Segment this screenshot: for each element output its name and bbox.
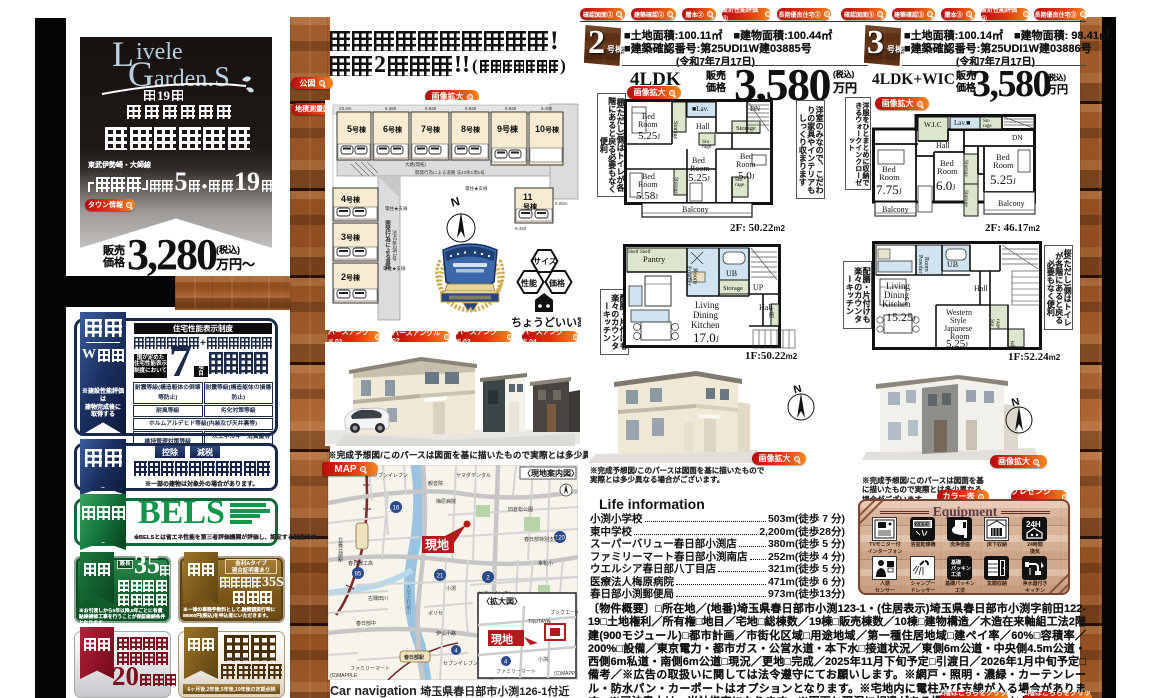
svg-text:セブンイレブン: セブンイレブン <box>443 660 478 667</box>
svg-text:9.930: 9.930 <box>505 106 517 111</box>
svg-text:rage: rage <box>995 319 1001 329</box>
svg-text:Room: Room <box>736 160 756 169</box>
svg-text:Dining: Dining <box>693 310 719 320</box>
svg-text:rage: rage <box>983 124 992 129</box>
svg-text:UB: UB <box>726 269 737 278</box>
svg-text:観音院: 観音院 <box>428 480 443 487</box>
svg-text:大落古利根川: 大落古利根川 <box>405 584 411 615</box>
svg-text:北春日部駅: 北春日部駅 <box>337 536 343 563</box>
svg-text:5.25J: 5.25J <box>946 338 968 350</box>
svg-text:春日部工高: 春日部工高 <box>348 560 373 567</box>
svg-text:9.930: 9.930 <box>425 106 437 111</box>
svg-text:Hall: Hall <box>936 141 951 150</box>
svg-text:6.440: 6.440 <box>515 226 527 231</box>
svg-text:6.480: 6.480 <box>541 106 553 111</box>
svg-text:Balcony: Balcony <box>882 205 909 214</box>
svg-text:Lav.■: Lav.■ <box>954 119 970 127</box>
svg-text:Shelf: Shelf <box>640 250 651 255</box>
svg-text:Room: Room <box>692 268 699 284</box>
svg-text:工法: 工法 <box>951 571 961 578</box>
svg-text:Living: Living <box>695 300 719 310</box>
svg-text:現地: 現地 <box>425 537 449 552</box>
svg-text:ヤマダデンタル: ヤマダデンタル <box>456 472 491 479</box>
svg-text:Kitchen: Kitchen <box>691 320 720 330</box>
svg-text:21: 21 <box>437 574 444 580</box>
svg-text:号棟: 号棟 <box>523 202 538 211</box>
svg-text:幸松小: 幸松小 <box>538 560 553 567</box>
svg-text:Shelf: Shelf <box>628 250 639 255</box>
svg-text:電柱★支線: 電柱★支線 <box>465 185 488 192</box>
svg-text:UB: UB <box>947 260 958 269</box>
svg-text:Storage: Storage <box>673 177 679 194</box>
svg-text:(C)MAPPLE: (C)MAPPLE <box>554 671 578 677</box>
svg-text:大路(開拓): 大路(開拓) <box>405 161 426 168</box>
svg-text:浴室乾燥: 浴室乾燥 <box>915 521 931 527</box>
svg-text:セブンイレブン: セブンイレブン <box>373 472 408 479</box>
svg-text:法42条1項1号: 法42条1項1号 <box>391 229 397 262</box>
svg-text:梅原病院: 梅原病院 <box>436 498 456 505</box>
svg-text:Balcony: Balcony <box>682 205 709 214</box>
svg-text:5.58J: 5.58J <box>636 190 658 202</box>
svg-text:(C)MAPPLE: (C)MAPPLE <box>330 673 358 679</box>
svg-text:ポリセ: ポリセ <box>428 610 443 617</box>
svg-text:DN: DN <box>750 105 760 113</box>
svg-text:17.0J: 17.0J <box>693 330 719 345</box>
svg-text:春日部中: 春日部中 <box>356 620 376 627</box>
svg-text:Storage: Storage <box>963 190 969 207</box>
svg-text:電柱★支線: 電柱★支線 <box>385 205 408 212</box>
svg-text:Storage: Storage <box>723 285 743 292</box>
svg-text:性能: 性能 <box>521 278 537 288</box>
svg-text:〈拡大図〉: 〈拡大図〉 <box>482 596 522 606</box>
svg-text:24H: 24H <box>1026 520 1041 529</box>
svg-text:ファミリーマート: ファミリーマート <box>350 666 390 672</box>
svg-text:85: 85 <box>355 572 362 578</box>
svg-text:Room: Room <box>937 166 958 176</box>
svg-text:Room: Room <box>638 120 658 129</box>
svg-text:TSUTAYA: TSUTAYA <box>528 619 551 625</box>
svg-text:N: N <box>792 385 803 396</box>
svg-text:W.I.C: W.I.C <box>924 120 942 129</box>
svg-text:伊仏小路: 伊仏小路 <box>436 630 456 637</box>
svg-text:旧倉松公園: 旧倉松公園 <box>508 506 533 513</box>
svg-text:古隅田川: 古隅田川 <box>368 595 388 602</box>
svg-text:Storage: Storage <box>963 160 969 177</box>
svg-text:玄関: 玄関 <box>1009 340 1015 350</box>
svg-text:Room: Room <box>993 160 1014 170</box>
svg-text:9.930: 9.930 <box>465 106 477 111</box>
svg-text:小渕: 小渕 <box>538 656 548 663</box>
svg-text:16: 16 <box>393 506 400 512</box>
svg-text:■Lav.: ■Lav. <box>692 105 709 113</box>
svg-text:サイズ: サイズ <box>533 256 557 266</box>
svg-text:〈現地案内図〉: 〈現地案内図〉 <box>523 468 578 478</box>
svg-text:Storage: Storage <box>736 125 756 132</box>
svg-text:春日部駅: 春日部駅 <box>404 654 424 661</box>
svg-text:パッキン: パッキン <box>951 565 971 572</box>
svg-text:UP: UP <box>753 283 764 292</box>
svg-text:開発行為による道路 法42条1項1号: 開発行為による道路 法42条1項1号 <box>415 169 485 176</box>
svg-text:11: 11 <box>523 192 533 202</box>
svg-text:9.05m: 9.05m <box>555 201 568 206</box>
svg-text:春日部特別支援: 春日部特別支援 <box>524 536 559 543</box>
svg-text:5.25J: 5.25J <box>688 172 710 184</box>
svg-text:Hall: Hall <box>696 122 711 131</box>
svg-text:5.25J: 5.25J <box>638 130 660 142</box>
svg-text:Kitchen: Kitchen <box>882 299 911 309</box>
svg-text:小渕: 小渕 <box>446 585 456 592</box>
svg-text:Room: Room <box>638 180 658 189</box>
svg-text:Room: Room <box>923 257 929 272</box>
svg-text:現地: 現地 <box>491 632 513 646</box>
svg-text:6.380: 6.380 <box>385 106 397 111</box>
svg-text:ファミリーマート: ファミリーマート <box>496 669 536 675</box>
svg-text:玄関: 玄関 <box>768 307 774 319</box>
svg-text:7.75J: 7.75J <box>876 182 902 197</box>
svg-text:5.25J: 5.25J <box>990 172 1016 187</box>
svg-text:N: N <box>1010 398 1021 409</box>
svg-text:基礎: 基礎 <box>950 559 962 566</box>
svg-text:15.25J: 15.25J <box>886 310 916 324</box>
svg-text:DN: DN <box>1012 133 1023 142</box>
svg-text:Room: Room <box>879 172 900 182</box>
svg-text:価格: 価格 <box>548 278 566 288</box>
svg-text:9号棟: 9号棟 <box>497 124 519 134</box>
svg-text:Balcony: Balcony <box>998 199 1025 208</box>
svg-text:ブックエース: ブックエース <box>550 609 578 616</box>
svg-text:23.4m: 23.4m <box>339 106 352 111</box>
svg-text:Storage: Storage <box>672 121 678 140</box>
svg-text:Pantry: Pantry <box>643 254 666 264</box>
svg-text:Hall: Hall <box>974 284 989 293</box>
